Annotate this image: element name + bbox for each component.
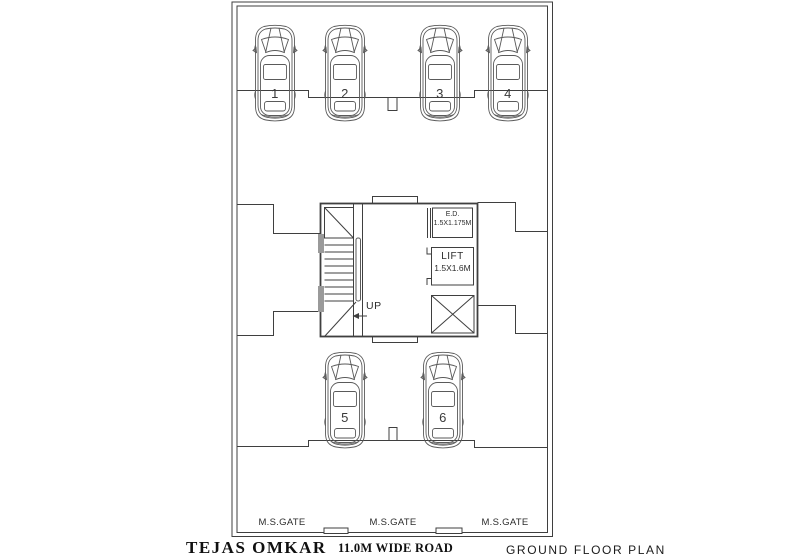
parking-spot-number: 3 [430,86,450,101]
parking-spot-number: 2 [335,86,355,101]
ed-name: E.D. [432,211,473,220]
parking-spot-number: 5 [335,410,355,425]
duct-cross [432,296,475,334]
car-icon [421,352,465,448]
wall-fill [318,234,324,253]
parking-spot-number: 4 [498,86,518,101]
floor-plan-page: 1 2 3 4 5 6 E.D. 1.5X1.175M LIFT 1.5X1.6… [0,0,800,560]
ed-door-strip [428,208,431,238]
gate-label: M.S.GATE [252,517,312,528]
car-icon [486,25,530,121]
car-icon [253,25,297,121]
staircase [325,204,368,337]
parked-cars [253,25,530,448]
top-entry-post [388,98,397,111]
car-icon [323,352,367,448]
parking-spot-number: 6 [433,410,453,425]
lift-name: LIFT [431,251,474,263]
parking-spot-number: 1 [265,86,285,101]
lift-label: LIFT 1.5X1.6M [431,251,474,274]
stair-direction-label: UP [366,300,382,312]
road-label: 11.0M WIDE ROAD [338,541,453,556]
stair-handrail [356,238,361,301]
car-icon [323,25,367,121]
drawing-title: GROUND FLOOR PLAN [506,543,666,557]
car-icon [418,25,462,121]
gate-label: M.S.GATE [363,517,423,528]
ed-size: 1.5X1.175M [432,220,473,229]
wall-fill [318,286,324,312]
building-walls [237,91,547,448]
plot-boundary [232,2,553,537]
gate-label: M.S.GATE [475,517,535,528]
floor-plan-drawing [0,0,800,560]
ed-label: E.D. 1.5X1.175M [432,211,473,228]
lift-size: 1.5X1.6M [431,263,474,274]
bottom-entry-post [389,428,397,441]
project-name: TEJAS OMKAR [186,538,327,558]
core-top-landing-tab [373,197,418,204]
